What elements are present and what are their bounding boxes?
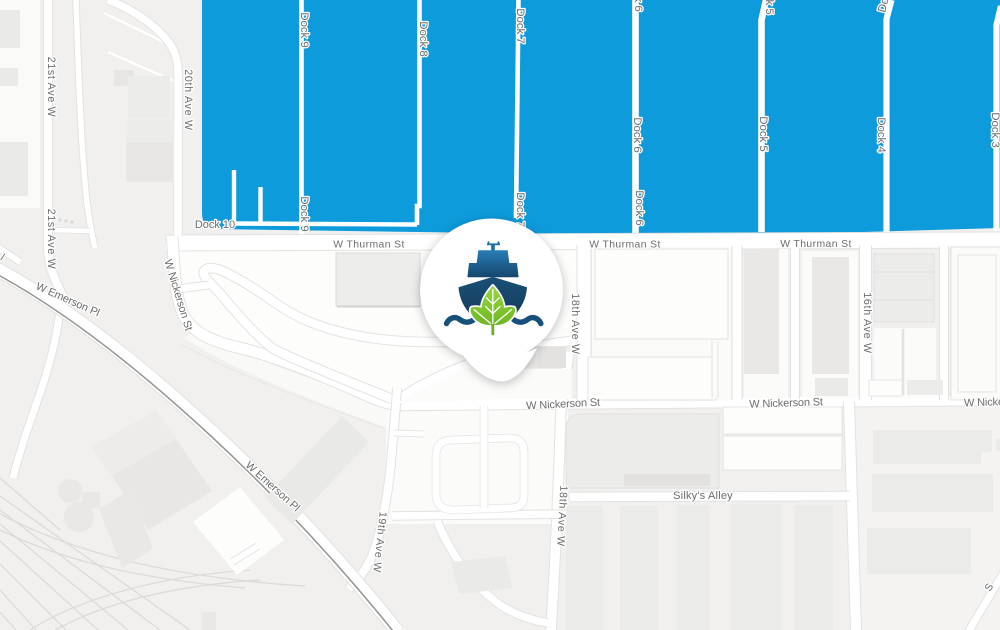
svg-text:Dock 5: Dock 5 [757, 116, 769, 151]
svg-text:Dock 10: Dock 10 [195, 219, 235, 231]
svg-text:Dock 8: Dock 8 [417, 21, 429, 56]
svg-text:Dock 6: Dock 6 [633, 190, 645, 225]
svg-text:W Thurman St: W Thurman St [333, 240, 405, 251]
svg-text:W Nickerson St: W Nickerson St [964, 395, 1000, 410]
svg-text:Silky's Alley: Silky's Alley [673, 490, 733, 502]
svg-text:Dock 4: Dock 4 [875, 117, 887, 152]
svg-text:Dock 9: Dock 9 [298, 196, 310, 231]
svg-text:Dock 9: Dock 9 [298, 12, 310, 47]
svg-text:Dock 5: Dock 5 [763, 0, 775, 15]
svg-text:16th Ave W: 16th Ave W [861, 292, 873, 354]
svg-text:Dock 7: Dock 7 [514, 8, 526, 43]
svg-text:18th Ave W: 18th Ave W [569, 293, 581, 355]
svg-text:Dock 6: Dock 6 [632, 0, 644, 12]
svg-text:21st Ave W: 21st Ave W [45, 209, 57, 270]
svg-text:Dock 6: Dock 6 [631, 117, 643, 152]
svg-text:21st Ave W: 21st Ave W [45, 57, 57, 118]
svg-text:20th Ave W: 20th Ave W [182, 69, 194, 131]
svg-text:Dock 7: Dock 7 [514, 192, 526, 227]
svg-text:Dock 3: Dock 3 [989, 112, 1000, 147]
svg-text:W Thurman St: W Thurman St [589, 240, 661, 251]
svg-text:W Thurman St: W Thurman St [780, 239, 852, 250]
